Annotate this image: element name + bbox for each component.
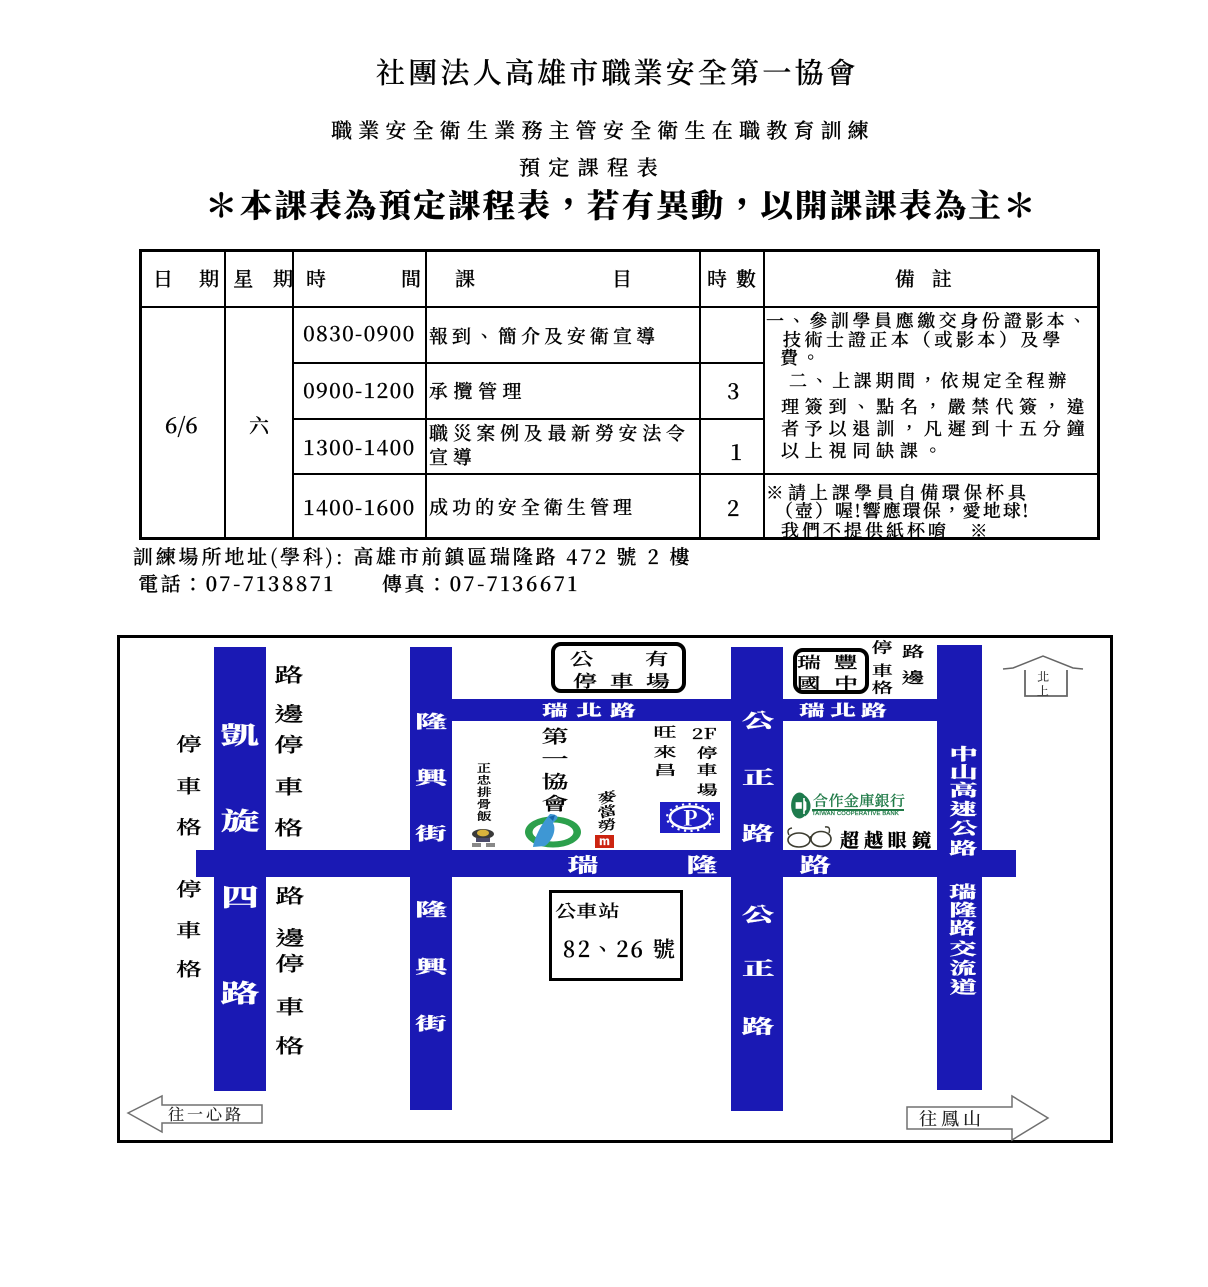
svg-text:往鳳山: 往鳳山: [919, 1105, 985, 1131]
svg-text:P: P: [683, 803, 697, 833]
svg-text:上: 上: [1037, 682, 1049, 698]
svg-text:往一心路: 往一心路: [168, 1102, 244, 1125]
